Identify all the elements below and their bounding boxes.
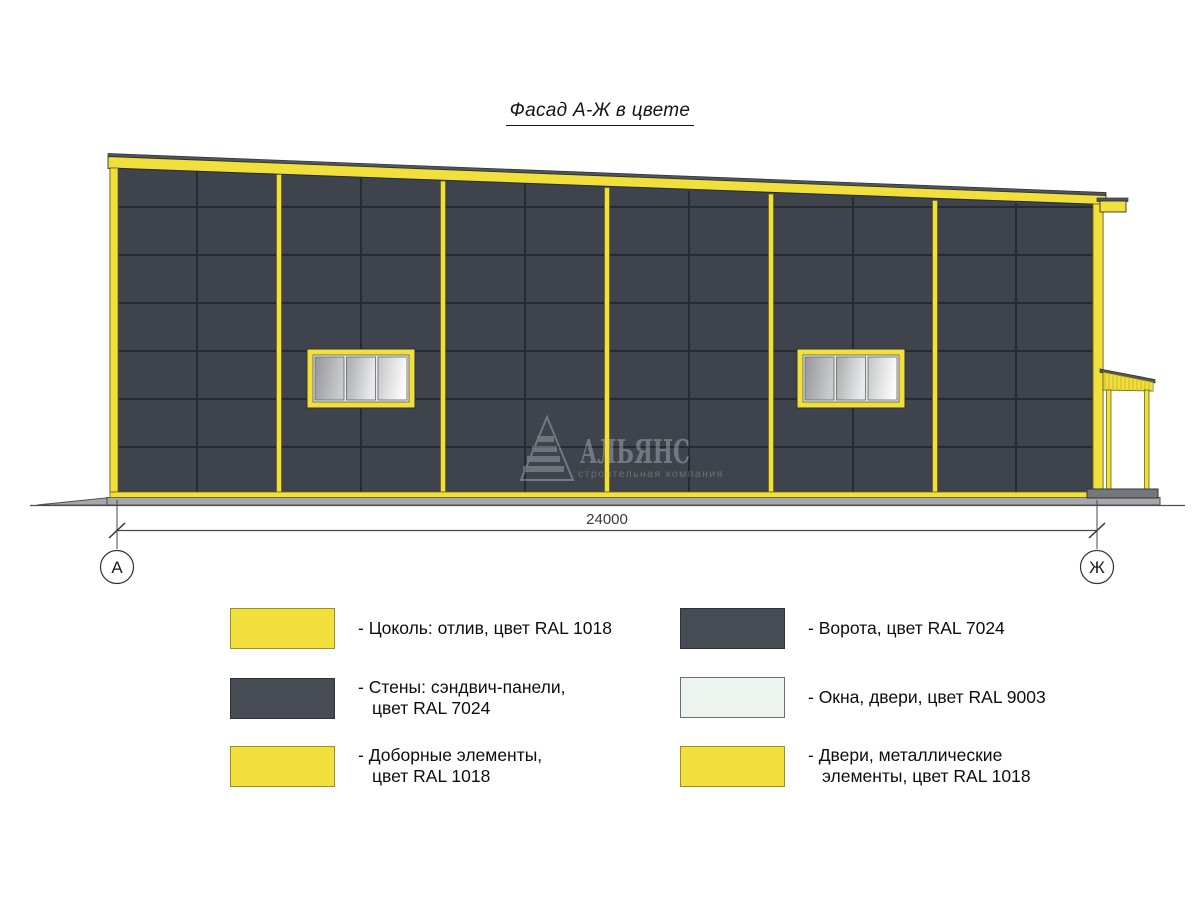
left-ground-ramp xyxy=(37,498,110,506)
legend-label: - Окна, двери, цвет RAL 9003 xyxy=(808,687,1046,708)
legend-label: - Цоколь: отлив, цвет RAL 1018 xyxy=(358,618,612,639)
legend-item-doors: - Двери, металлические элементы, цвет RA… xyxy=(680,745,1031,787)
facade-elevation-drawing: АЛЬЯНС строительная компания 24000 А Ж xyxy=(0,0,1200,600)
legend-swatch-ral1018 xyxy=(230,746,335,787)
window-left xyxy=(307,349,415,408)
axis-marker-zh: Ж xyxy=(1081,551,1114,584)
axis-label-zh: Ж xyxy=(1089,558,1105,577)
window-right xyxy=(797,349,905,408)
legend-label: - Двери, металлические элементы, цвет RA… xyxy=(808,745,1031,787)
legend-item-plinth: - Цоколь: отлив, цвет RAL 1018 xyxy=(230,608,612,649)
axis-marker-a: А xyxy=(101,551,134,584)
legend-item-windows: - Окна, двери, цвет RAL 9003 xyxy=(680,677,1046,718)
watermark-company-name: АЛЬЯНС xyxy=(580,432,690,471)
watermark-company-subtitle: строительная компания xyxy=(578,468,724,480)
dimension-24000: 24000 xyxy=(109,500,1105,549)
foundation-strip xyxy=(107,498,1160,506)
legend-label: - Доборные элементы, цвет RAL 1018 xyxy=(358,745,542,787)
porch-step xyxy=(1087,489,1158,498)
legend-swatch-ral9003 xyxy=(680,677,785,718)
legend-item-flashings: - Доборные элементы, цвет RAL 1018 xyxy=(230,745,542,787)
axis-label-a: А xyxy=(111,558,123,577)
roof-overhang-tab xyxy=(1100,201,1126,212)
legend-label: - Стены: сэндвич-панели, цвет RAL 7024 xyxy=(358,677,566,719)
legend-swatch-ral7024 xyxy=(230,678,335,719)
legend-label: - Ворота, цвет RAL 7024 xyxy=(808,618,1005,639)
facade-drawing-sheet: Фасад А-Ж в цвете xyxy=(0,0,1200,900)
legend-item-walls: - Стены: сэндвич-панели, цвет RAL 7024 xyxy=(230,677,566,719)
plinth-flashing xyxy=(110,492,1103,498)
legend-item-gates: - Ворота, цвет RAL 7024 xyxy=(680,608,1005,649)
legend-swatch-ral7024 xyxy=(680,608,785,649)
legend-swatch-ral1018 xyxy=(230,608,335,649)
porch-post-right xyxy=(1145,390,1150,490)
porch-post-left xyxy=(1107,390,1112,490)
legend-swatch-ral1018 xyxy=(680,746,785,787)
dimension-value: 24000 xyxy=(586,511,628,528)
